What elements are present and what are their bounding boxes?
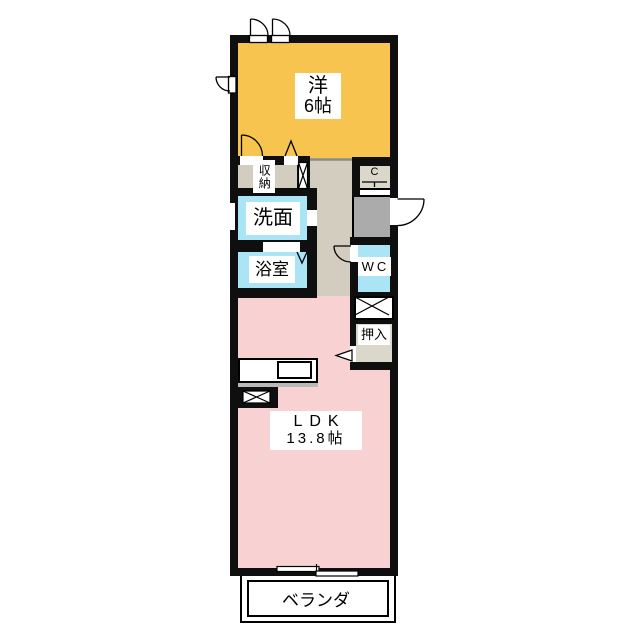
- wall-segment: [350, 237, 398, 245]
- ldk-label: LDK 13.8帖: [270, 411, 362, 450]
- wall-segment: [238, 386, 278, 408]
- pipe-space-box: [354, 296, 394, 320]
- western-room-size: 6帖: [304, 97, 332, 116]
- washroom-window-slit: [230, 203, 235, 230]
- wall-segment: [230, 568, 398, 576]
- wall-segment: [307, 188, 317, 298]
- wc-door-gap: [350, 245, 358, 262]
- wall-segment: [230, 288, 317, 298]
- counter-edge: [238, 383, 318, 387]
- bathroom-label: 浴室: [249, 256, 295, 283]
- veranda-label: ベランダ: [264, 586, 368, 611]
- ldk-name: LDK: [286, 414, 345, 431]
- entrance-door-swing-icon: [398, 199, 425, 226]
- storage-label: 収納: [253, 160, 275, 193]
- entrance-fill: [354, 197, 390, 237]
- wall-segment: [352, 157, 360, 197]
- kitchen-sink: [277, 361, 312, 379]
- wc-label: WC: [358, 257, 391, 276]
- closet-c-label: C: [366, 166, 383, 180]
- closet-c-sliding-door: [360, 188, 390, 197]
- western-room-name: 洋: [308, 76, 328, 97]
- oshiire-door-gap: [350, 346, 356, 362]
- oshiire-label: 押入: [358, 325, 390, 345]
- ldk-size: 13.8帖: [286, 431, 345, 447]
- washroom-label: 洗面: [246, 202, 300, 235]
- wall-segment: [230, 35, 238, 576]
- western-room-label: 洋 6帖: [295, 73, 341, 119]
- wall-segment: [230, 35, 398, 43]
- storage-opening-gap: [284, 156, 298, 165]
- entrance-door-gap: [390, 198, 398, 225]
- washroom-door-gap: [307, 210, 317, 226]
- bathroom-door-gap: [263, 242, 300, 252]
- floor-plan: 洋 6帖 収納 洗面 浴室 C WC 押入 LDK 13.8帖 ベランダ: [0, 0, 640, 640]
